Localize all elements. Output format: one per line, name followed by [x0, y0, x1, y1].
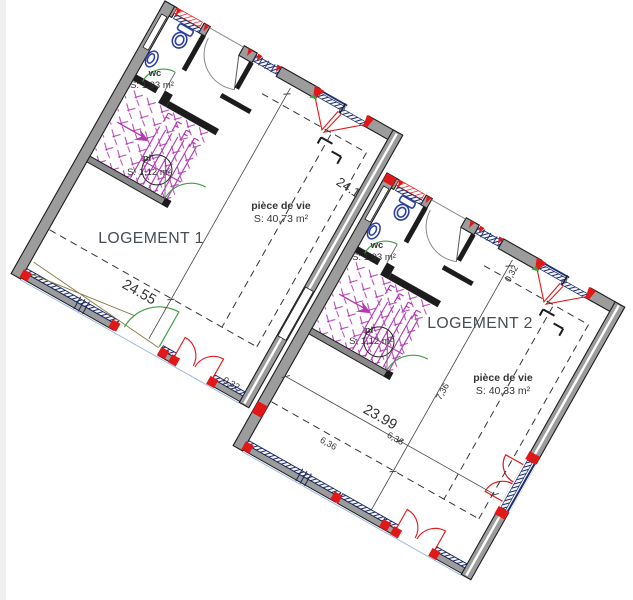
svg-text:wc: wc — [370, 240, 384, 251]
svg-text:S: 1,12 m²: S: 1,12 m² — [127, 167, 171, 178]
svg-text:pièce de vie: pièce de vie — [473, 372, 533, 384]
svg-text:pl: pl — [143, 153, 151, 164]
svg-text:pl: pl — [365, 325, 373, 336]
svg-text:LOGEMENT 1: LOGEMENT 1 — [98, 230, 204, 247]
svg-text:S: 1,12 m²: S: 1,12 m² — [349, 336, 393, 347]
svg-text:S: 40,33 m²: S: 40,33 m² — [476, 385, 531, 397]
svg-text:S: 1,93 m²: S: 1,93 m² — [352, 252, 396, 263]
svg-text:S: 1,93 m²: S: 1,93 m² — [130, 80, 174, 91]
svg-text:S: 40,73 m²: S: 40,73 m² — [254, 213, 309, 225]
svg-text:LOGEMENT 2: LOGEMENT 2 — [427, 315, 533, 332]
svg-text:wc: wc — [148, 68, 162, 79]
svg-text:pièce de vie: pièce de vie — [251, 200, 311, 212]
